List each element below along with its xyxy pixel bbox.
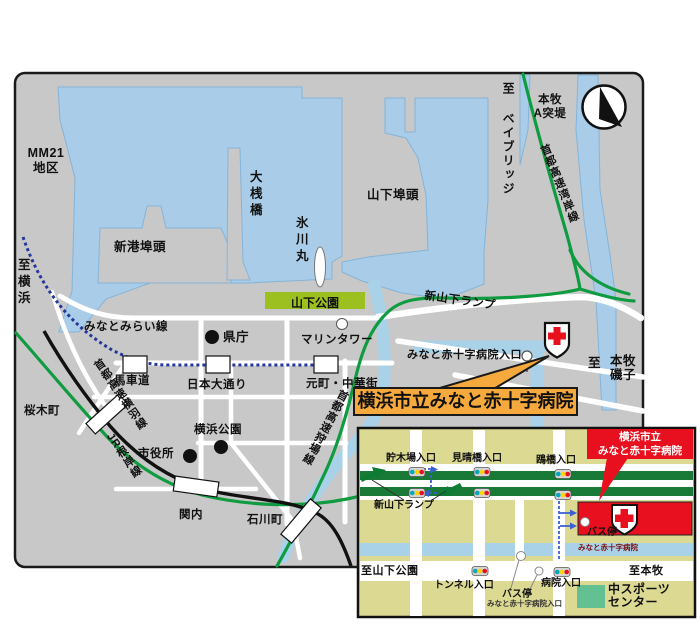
label-ishikawacho: 石川町 xyxy=(247,514,283,528)
hospital-callout: 横浜市立みなと赤十字病院 xyxy=(353,387,578,416)
area-label-mm21: MM21地区 xyxy=(24,146,68,176)
label-honmoku-a: 本牧A突堤 xyxy=(526,94,574,121)
label-marine-tower: マリンタワー xyxy=(301,334,373,348)
label-kannai: 関内 xyxy=(179,509,203,523)
inset-canal xyxy=(360,543,693,556)
label-hospital-entrance: みなと赤十字病院入口 xyxy=(407,349,522,362)
inset-label-bus-stop-2-sub: みなと赤十字病院入口 xyxy=(487,600,562,609)
label-yamashita-park: 山下公園 xyxy=(265,294,365,311)
inset-label-tunnel: トンネル入口 xyxy=(434,580,494,592)
hikawamaru-ship-icon xyxy=(315,247,326,287)
label-kencho: 県庁 xyxy=(223,330,249,345)
hospital-bus-stop-icon xyxy=(581,518,590,527)
label-shiyakusho: 市役所 xyxy=(138,448,174,462)
inset-hospital-callout: 横浜市立みなと赤十字病院 xyxy=(587,429,693,459)
marine-tower-icon xyxy=(337,319,348,330)
label-shinko-pier: 新港埠頭 xyxy=(114,240,166,255)
label-osanbashi: 大桟橋 xyxy=(247,170,262,220)
label-yamashita-pier: 山下埠頭 xyxy=(367,188,419,203)
shiyakusho-dot xyxy=(183,449,197,463)
inset-label-bus-stop-1-sub: みなと赤十字病院 xyxy=(578,544,638,553)
inset-label-to-yamashita-park: 至山下公園 xyxy=(361,565,419,578)
yokohama-park-dot xyxy=(214,440,228,454)
inset-label-kamomebashi: 鴎橋入口 xyxy=(536,455,576,467)
station-marker-nihon-odori xyxy=(206,356,230,373)
inset-label-hospital-gate: 病院入口 xyxy=(541,578,581,590)
inset-label-bus-stop-1: バス停 xyxy=(587,527,617,539)
label-minatomirai-line: みなとみらい線 xyxy=(84,321,168,335)
inset-label-miharashibashi: 見晴橋入口 xyxy=(452,453,502,465)
station-marker-bashamichi xyxy=(123,356,147,373)
inset-label-ramp: 新山下ランプ xyxy=(374,500,434,512)
label-nihon-odori: 日本大通り xyxy=(187,379,247,393)
station-marker-motomachi xyxy=(314,356,338,373)
label-to-yokohama: 至横浜 xyxy=(15,258,30,308)
label-to-honmoku: 本牧 xyxy=(610,354,636,369)
label-yokohama-park: 横浜公園 xyxy=(194,424,242,438)
hospital-access-map: MM21地区 至横浜 新港埠頭 大桟橋 氷川丸 山下埠頭 山下公園 至 ベイブリ… xyxy=(0,0,700,624)
inset-label-sports-center: 中スポーツセンター xyxy=(608,583,670,609)
inset-label-to-honmoku: 至本牧 xyxy=(629,565,664,578)
inset-label-chobokuba: 貯木場入口 xyxy=(386,453,436,465)
label-sakuragicho: 桜木町 xyxy=(24,405,60,419)
label-to-prefix: 至 xyxy=(588,356,601,371)
label-hikawamaru: 氷川丸 xyxy=(293,216,308,266)
label-to-isogo: 磯子 xyxy=(610,368,636,383)
sports-center-block xyxy=(577,585,605,608)
hospital-icon xyxy=(545,323,569,358)
kencho-dot xyxy=(205,330,219,344)
label-to-baybridge: 至 ベイブリッジ xyxy=(501,82,515,196)
compass-icon xyxy=(583,86,626,129)
